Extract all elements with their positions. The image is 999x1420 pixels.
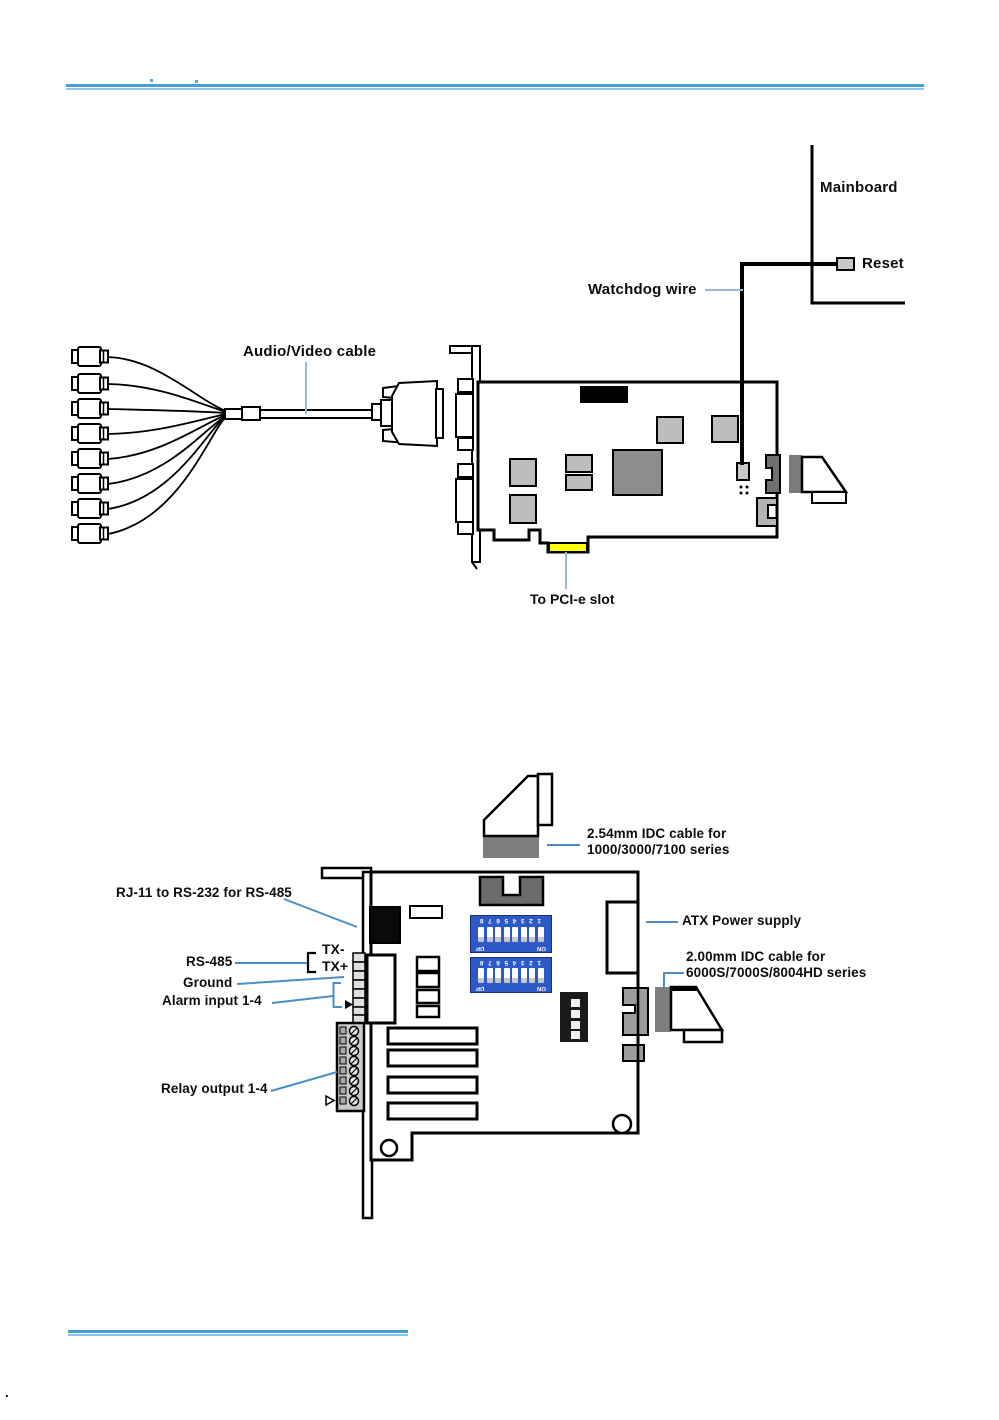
pcie-edge-connector (549, 543, 587, 552)
bnc-connector (72, 524, 108, 543)
jumper-blocks (417, 957, 439, 1017)
alarm-arrow (345, 1000, 353, 1009)
rj11-rs232-label: RJ-11 to RS-232 for RS-485 (116, 885, 292, 900)
idc-254-cable-connector (483, 774, 552, 858)
dip-numbers: 12345678 (476, 959, 546, 966)
mainboard-label: Mainboard (820, 179, 898, 196)
idc200-label-line2: 6000S/7000S/8004HD series (686, 965, 866, 980)
dip-on-label: ON (537, 985, 546, 991)
capture-card-body (478, 382, 780, 552)
dip-dp-label: DP (476, 985, 484, 991)
bnc-connector (72, 374, 108, 393)
bnc-connector (72, 347, 108, 366)
dip-numbers: 12345678 (476, 917, 546, 924)
alarm-input-label: Alarm input 1-4 (162, 993, 262, 1008)
idc-200-cable-connector (655, 987, 722, 1042)
mounting-hole (381, 1140, 397, 1156)
white-connector (367, 955, 395, 1023)
ground-label: Ground (183, 975, 232, 990)
reset-label: Reset (862, 255, 904, 272)
dip-switch-1[interactable]: ON DP 12345678 (470, 915, 552, 953)
manual-page: ON DP 12345678 ON DP 12345678 Mainboard … (0, 0, 999, 1420)
reset-pin-header (837, 258, 854, 270)
rj11-jack (370, 907, 400, 943)
relay-arrow (326, 1096, 334, 1105)
mainboard-outline (812, 145, 905, 303)
chip (712, 416, 738, 442)
chip (510, 459, 536, 486)
alarm-bracket (334, 983, 343, 1007)
footer-rule-dark (68, 1330, 408, 1333)
bnc-connector (72, 499, 108, 518)
mounting-hole (613, 1115, 631, 1133)
bnc-connector (72, 424, 108, 443)
watchdog-header (737, 463, 749, 480)
dip-on-label: ON (537, 945, 546, 951)
chip-main (613, 450, 662, 495)
diagram-artwork (0, 0, 999, 1420)
idc200-label-line1: 2.00mm IDC cable for (686, 949, 825, 964)
chip (566, 475, 592, 490)
bnc-connector (72, 449, 108, 468)
chip (510, 495, 536, 523)
chip-black (580, 386, 628, 403)
tx-minus-label: TX- (322, 941, 345, 957)
relay-output-label: Relay output 1-4 (161, 1081, 268, 1096)
av-cable-label: Audio/Video cable (243, 343, 376, 360)
watchdog-wire-label: Watchdog wire (588, 281, 697, 298)
chip (566, 455, 592, 472)
idc-connector-top-card (789, 455, 846, 503)
atx-power-label: ATX Power supply (682, 913, 801, 928)
relay-screw-terminal (337, 1023, 364, 1111)
dip-sliders[interactable] (476, 927, 546, 942)
idc254-label-line1: 2.54mm IDC cable for (587, 826, 726, 841)
footer-rule-light (68, 1334, 408, 1336)
stray-dot: . (5, 1385, 9, 1400)
black-dip-switch (560, 992, 588, 1042)
atx-power-connector (607, 902, 638, 973)
bnc-connector (72, 399, 108, 418)
tx-plus-label: TX+ (322, 958, 348, 974)
dip-switch-2[interactable]: ON DP 12345678 (470, 957, 552, 993)
dip-sliders[interactable] (476, 968, 546, 983)
idc254-label-line2: 1000/3000/7100 series (587, 842, 730, 857)
edge-idc-headers (623, 984, 648, 1062)
pcie-slot-label: To PCI-e slot (530, 591, 615, 607)
av-cable (72, 347, 443, 543)
bnc-connector (72, 474, 108, 493)
rs485-label: RS-485 (186, 954, 232, 969)
tx-bracket (308, 953, 316, 972)
capture-card-bracket (450, 346, 480, 569)
alarm-pin-header (353, 953, 365, 1023)
chip (657, 417, 683, 443)
db-connector (372, 381, 443, 446)
dip-dp-label: DP (476, 945, 484, 951)
